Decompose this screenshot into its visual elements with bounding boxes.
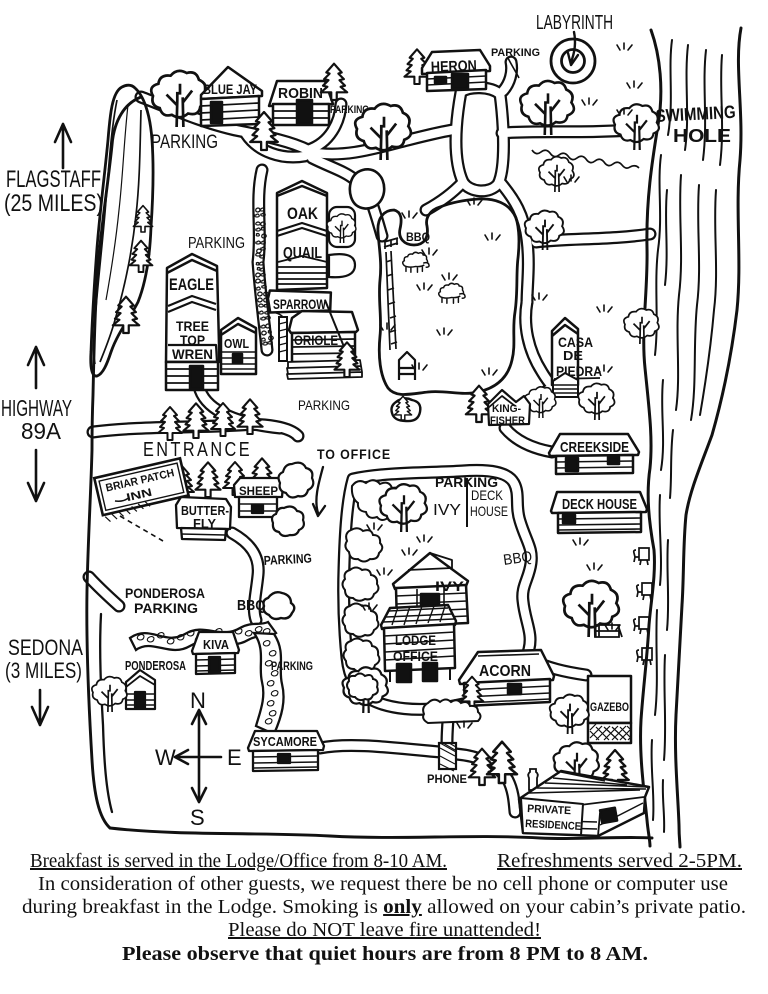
- svg-text:SHEEP: SHEEP: [239, 484, 278, 498]
- svg-text:SWIMMING: SWIMMING: [655, 102, 736, 126]
- svg-text:PHONE: PHONE: [427, 772, 467, 786]
- svg-text:OWL: OWL: [224, 336, 249, 351]
- svg-text:OAK: OAK: [287, 204, 319, 223]
- svg-text:ENTRANCE: ENTRANCE: [143, 439, 252, 461]
- svg-text:PARKING: PARKING: [134, 600, 198, 616]
- svg-text:PARKING: PARKING: [298, 397, 350, 413]
- svg-text:GAZEBO: GAZEBO: [590, 700, 629, 714]
- svg-text:Please do NOT leave fire unatt: Please do NOT leave fire unattended!: [228, 919, 541, 941]
- svg-text:DE: DE: [563, 348, 583, 363]
- svg-text:BUTTER-: BUTTER-: [181, 504, 229, 518]
- svg-text:(25 MILES): (25 MILES): [4, 190, 103, 217]
- svg-text:DECK: DECK: [471, 487, 504, 503]
- svg-text:DECK HOUSE: DECK HOUSE: [562, 497, 637, 513]
- svg-text:PARKING: PARKING: [271, 659, 313, 673]
- svg-text:CREEKSIDE: CREEKSIDE: [560, 439, 629, 456]
- svg-text:Please observe that quiet hour: Please observe that quiet hours are from…: [122, 943, 648, 965]
- svg-text:BBQ: BBQ: [406, 232, 430, 244]
- svg-text:BLUE JAY: BLUE JAY: [203, 81, 258, 97]
- svg-text:IVY: IVY: [435, 578, 465, 594]
- svg-text:HOLE: HOLE: [673, 126, 731, 146]
- svg-text:FLY: FLY: [193, 517, 217, 531]
- svg-text:HERON: HERON: [431, 57, 478, 76]
- svg-text:HOUSE: HOUSE: [470, 503, 508, 519]
- svg-text:FLAGSTAFF: FLAGSTAFF: [6, 166, 101, 193]
- svg-text:KIVA: KIVA: [203, 637, 230, 652]
- svg-text:WREN: WREN: [172, 346, 213, 362]
- svg-text:Breakfast is served in the Lod: Breakfast is served in the Lodge/Office …: [30, 850, 447, 872]
- svg-text:during breakfast in the Lodge.: during breakfast in the Lodge. Smoking i…: [22, 896, 746, 918]
- svg-text:PARKING: PARKING: [263, 551, 312, 568]
- svg-text:SYCAMORE: SYCAMORE: [253, 734, 317, 749]
- svg-text:In consideration of other gues: In consideration of other guests, we req…: [38, 873, 728, 895]
- svg-text:LODGE: LODGE: [395, 632, 436, 648]
- svg-text:W: W: [155, 745, 176, 770]
- svg-text:PRIVATE: PRIVATE: [527, 803, 572, 817]
- svg-text:SEDONA: SEDONA: [8, 635, 83, 660]
- svg-text:TO OFFICE: TO OFFICE: [317, 446, 391, 462]
- svg-text:EAGLE: EAGLE: [169, 275, 214, 294]
- svg-text:PONDEROSA: PONDEROSA: [125, 585, 205, 601]
- svg-text:SPARROW: SPARROW: [273, 297, 326, 312]
- svg-text:ORIOLE: ORIOLE: [294, 332, 338, 348]
- svg-text:89A: 89A: [21, 418, 62, 444]
- svg-text:(3 MILES): (3 MILES): [5, 658, 82, 683]
- svg-text:KING-: KING-: [492, 403, 521, 415]
- svg-text:BBQ: BBQ: [237, 597, 265, 614]
- svg-text:LABYRINTH: LABYRINTH: [536, 12, 613, 34]
- svg-text:QUAIL: QUAIL: [283, 245, 322, 262]
- svg-text:FISHER: FISHER: [490, 415, 525, 427]
- svg-text:PARKING: PARKING: [151, 132, 218, 153]
- svg-text:PONDEROSA: PONDEROSA: [125, 659, 186, 673]
- svg-text:Refreshments served 2-5PM.: Refreshments served 2-5PM.: [497, 850, 742, 872]
- svg-text:PARKING: PARKING: [491, 47, 540, 59]
- svg-text:PARKING: PARKING: [188, 235, 245, 252]
- svg-text:ACORN: ACORN: [479, 663, 531, 680]
- svg-text:ROBIN: ROBIN: [278, 85, 323, 102]
- svg-text:S: S: [190, 805, 205, 830]
- svg-text:N: N: [190, 688, 206, 713]
- svg-text:OFFICE: OFFICE: [393, 648, 438, 664]
- svg-text:IVY: IVY: [433, 502, 461, 519]
- svg-text:E: E: [227, 745, 242, 770]
